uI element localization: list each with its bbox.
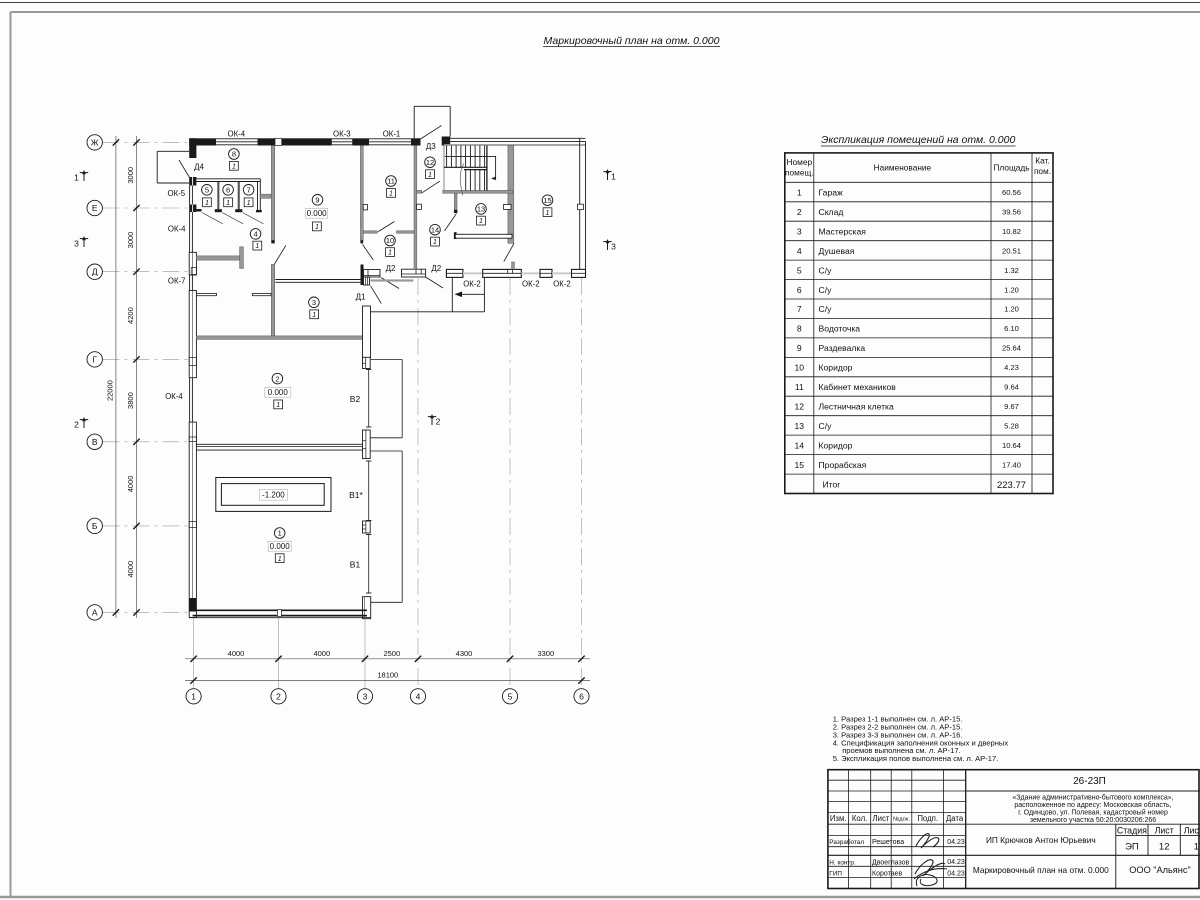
svg-text:1: 1 (232, 163, 236, 170)
svg-text:ГИП: ГИП (829, 871, 842, 878)
svg-text:3: 3 (363, 691, 368, 701)
svg-text:1.20: 1.20 (1004, 285, 1019, 294)
svg-text:2: 2 (797, 207, 802, 217)
svg-text:13: 13 (795, 421, 805, 431)
svg-text:В2: В2 (350, 394, 361, 404)
svg-text:5. Экспликация полов выполнена: 5. Экспликация полов выполнена см. л. АР… (833, 754, 999, 763)
svg-text:Лист: Лист (1184, 825, 1200, 835)
svg-text:С/у: С/у (819, 421, 833, 431)
svg-text:39.56: 39.56 (1002, 207, 1021, 216)
svg-text:№док.: №док. (893, 816, 910, 822)
svg-text:Решетова: Решетова (872, 839, 904, 846)
svg-text:помещ.: помещ. (785, 168, 814, 178)
svg-text:04.23: 04.23 (947, 839, 965, 846)
svg-text:Кабинет механиков: Кабинет механиков (819, 382, 897, 392)
svg-text:7: 7 (797, 304, 802, 314)
svg-text:3: 3 (611, 242, 616, 252)
svg-text:Д: Д (92, 267, 98, 277)
svg-text:0.000: 0.000 (307, 209, 328, 218)
svg-text:Склад: Склад (819, 207, 844, 217)
svg-text:2: 2 (74, 420, 79, 430)
svg-text:Г: Г (92, 354, 97, 364)
svg-text:С/у: С/у (819, 285, 833, 295)
svg-text:3300: 3300 (537, 649, 554, 658)
svg-text:Д4: Д4 (194, 163, 204, 172)
svg-text:«Здание административно-бытово: «Здание административно-бытового комплек… (1012, 793, 1173, 801)
svg-text:1: 1 (226, 200, 230, 207)
svg-text:Водоточка: Водоточка (819, 324, 861, 334)
svg-text:г. Одинцово, ул. Полевая, када: г. Одинцово, ул. Полевая, кадастровый но… (1018, 808, 1168, 816)
svg-text:ЭП: ЭП (1125, 842, 1139, 853)
svg-text:Экспликация помещений на отм.: Экспликация помещений на отм. 0.000 (821, 134, 1015, 146)
svg-text:26-23П: 26-23П (1073, 776, 1106, 787)
svg-text:60.56: 60.56 (1002, 188, 1021, 197)
svg-text:2: 2 (275, 374, 279, 383)
svg-text:Маркировочный план на отм. 0.0: Маркировочный план на отм. 0.000 (544, 35, 720, 47)
svg-text:3: 3 (74, 239, 79, 249)
svg-text:расположенное по адресу: Моско: расположенное по адресу: Московская обла… (1014, 801, 1171, 809)
svg-text:0.000: 0.000 (268, 388, 289, 397)
svg-text:земельного участка 50:20:00302: земельного участка 50:20:0030206:266 (1030, 817, 1156, 824)
svg-text:1: 1 (276, 402, 280, 409)
svg-text:ОК-4: ОК-4 (165, 392, 183, 401)
svg-text:Кат.: Кат. (1035, 156, 1049, 166)
svg-text:10.64: 10.64 (1002, 441, 1021, 450)
svg-text:Площадь: Площадь (993, 163, 1029, 173)
svg-text:14: 14 (795, 440, 805, 450)
svg-text:3: 3 (312, 298, 316, 307)
svg-text:4300: 4300 (456, 649, 473, 658)
svg-text:7: 7 (247, 186, 251, 195)
svg-text:ОК-2: ОК-2 (463, 279, 481, 288)
svg-text:1: 1 (389, 191, 393, 198)
svg-text:ООО "Альянс": ООО "Альянс" (1129, 865, 1190, 875)
svg-text:ИП Крючков Антон Юрьевич: ИП Крючков Антон Юрьевич (986, 835, 1096, 845)
svg-text:ОК-4: ОК-4 (228, 129, 246, 138)
svg-text:С/у: С/у (819, 304, 833, 314)
svg-text:Д2: Д2 (386, 264, 396, 273)
svg-text:223.77: 223.77 (997, 480, 1026, 491)
svg-text:Д3: Д3 (426, 142, 436, 151)
svg-text:ОК-2: ОК-2 (553, 279, 571, 288)
svg-text:9.64: 9.64 (1004, 383, 1019, 392)
svg-text:1: 1 (428, 172, 432, 179)
svg-text:4.23: 4.23 (1004, 363, 1019, 372)
svg-text:1: 1 (479, 218, 483, 225)
svg-text:22000: 22000 (105, 380, 114, 401)
svg-text:5: 5 (205, 186, 209, 195)
svg-text:4: 4 (254, 230, 258, 239)
svg-text:ОК-4: ОК-4 (168, 224, 186, 233)
svg-text:3000: 3000 (126, 167, 135, 184)
svg-text:1: 1 (433, 239, 437, 246)
svg-text:2500: 2500 (383, 649, 400, 658)
svg-text:ОК-1: ОК-1 (383, 129, 401, 138)
svg-text:1: 1 (546, 210, 550, 217)
svg-text:4: 4 (416, 691, 421, 701)
svg-text:1: 1 (278, 529, 282, 538)
svg-text:Е: Е (92, 203, 98, 213)
svg-text:Коротаев: Коротаев (872, 871, 903, 878)
svg-text:0.000: 0.000 (270, 542, 291, 551)
svg-text:15: 15 (543, 196, 551, 205)
svg-text:1.20: 1.20 (1004, 305, 1019, 314)
svg-text:В1: В1 (350, 560, 361, 570)
svg-text:9: 9 (797, 343, 802, 353)
svg-text:А: А (92, 607, 98, 617)
svg-text:12: 12 (795, 401, 805, 411)
svg-text:ОК-7: ОК-7 (168, 277, 186, 286)
svg-text:Подп.: Подп. (917, 814, 938, 823)
svg-text:1: 1 (797, 188, 802, 198)
svg-text:13: 13 (477, 205, 485, 214)
svg-text:Дата: Дата (946, 814, 964, 823)
svg-text:Кол.: Кол. (852, 814, 867, 823)
svg-text:6: 6 (226, 186, 230, 195)
svg-text:3000: 3000 (126, 232, 135, 249)
svg-text:8: 8 (797, 324, 802, 334)
svg-text:Гараж: Гараж (819, 188, 844, 198)
svg-text:Б: Б (92, 521, 98, 531)
svg-text:В: В (92, 437, 98, 447)
svg-text:Прорабская: Прорабская (819, 460, 867, 470)
svg-text:1: 1 (312, 312, 316, 319)
svg-text:Лист: Лист (1155, 825, 1174, 835)
svg-text:5: 5 (508, 691, 513, 701)
svg-text:2: 2 (276, 691, 281, 701)
svg-text:4000: 4000 (313, 649, 330, 658)
svg-text:ОК-2: ОК-2 (522, 279, 540, 288)
svg-text:10: 10 (795, 363, 805, 373)
svg-text:1: 1 (74, 173, 79, 183)
svg-text:С/у: С/у (819, 265, 833, 275)
svg-text:Двоеглазов: Двоеглазов (872, 860, 909, 867)
svg-text:2: 2 (436, 417, 441, 427)
svg-text:1: 1 (388, 250, 392, 257)
svg-text:Н. контр.: Н. контр. (829, 860, 856, 867)
svg-text:4200: 4200 (126, 307, 135, 324)
svg-text:Лист: Лист (873, 814, 890, 823)
svg-text:20.51: 20.51 (1002, 246, 1021, 255)
svg-text:Раздевалка: Раздевалка (819, 343, 866, 353)
svg-text:9: 9 (315, 196, 319, 205)
svg-text:Мастерская: Мастерская (819, 226, 867, 236)
svg-text:1: 1 (315, 224, 319, 231)
svg-text:18100: 18100 (377, 671, 398, 680)
svg-text:10: 10 (386, 236, 394, 245)
svg-text:1: 1 (255, 243, 259, 250)
svg-text:17: 17 (1194, 842, 1200, 853)
svg-text:В1*: В1* (349, 490, 363, 500)
svg-text:-1.200: -1.200 (262, 491, 285, 500)
svg-text:Коридор: Коридор (819, 363, 853, 373)
svg-text:5: 5 (797, 265, 802, 275)
svg-text:12: 12 (1159, 842, 1170, 853)
svg-text:11: 11 (795, 382, 804, 392)
svg-text:Д2: Д2 (431, 264, 441, 273)
svg-text:8: 8 (232, 150, 236, 159)
svg-text:15: 15 (795, 460, 805, 470)
svg-text:10.82: 10.82 (1002, 227, 1021, 236)
svg-text:Маркировочный план на отм. 0.0: Маркировочный план на отм. 0.000 (973, 865, 1109, 875)
svg-text:17.40: 17.40 (1002, 460, 1021, 469)
svg-text:3800: 3800 (126, 392, 135, 409)
svg-text:Изм.: Изм. (830, 814, 847, 823)
svg-text:ОК-5: ОК-5 (168, 189, 186, 198)
svg-text:4: 4 (797, 246, 802, 256)
svg-text:4000: 4000 (126, 476, 135, 493)
svg-text:1: 1 (278, 556, 282, 563)
svg-text:25.64: 25.64 (1002, 344, 1021, 353)
svg-text:6.10: 6.10 (1004, 324, 1019, 333)
svg-text:1: 1 (205, 200, 209, 207)
svg-text:ОК-3: ОК-3 (333, 129, 351, 138)
svg-text:5.28: 5.28 (1004, 421, 1019, 430)
svg-text:04.23: 04.23 (947, 870, 965, 877)
svg-text:4000: 4000 (126, 561, 135, 578)
svg-text:Ж: Ж (91, 137, 99, 147)
svg-text:Итог: Итог (823, 480, 841, 490)
svg-text:9.67: 9.67 (1004, 402, 1019, 411)
svg-text:Номер: Номер (787, 157, 813, 167)
svg-text:Душевая: Душевая (819, 246, 855, 256)
svg-text:Лестничная клетка: Лестничная клетка (819, 401, 894, 411)
svg-text:6: 6 (579, 691, 584, 701)
svg-text:1: 1 (611, 172, 616, 182)
svg-text:Наименование: Наименование (874, 163, 932, 173)
svg-text:14: 14 (431, 225, 439, 234)
svg-text:Стадия: Стадия (1117, 825, 1147, 835)
svg-text:04.23: 04.23 (947, 859, 965, 866)
svg-text:Разработал: Разработал (829, 838, 864, 846)
svg-text:11: 11 (387, 177, 395, 186)
svg-text:12: 12 (426, 158, 434, 167)
svg-text:1.32: 1.32 (1004, 266, 1019, 275)
svg-text:1: 1 (191, 691, 196, 701)
svg-text:3: 3 (797, 226, 802, 236)
svg-text:6: 6 (797, 285, 802, 295)
svg-text:4000: 4000 (228, 649, 245, 658)
svg-text:1: 1 (247, 200, 251, 207)
svg-text:пом.: пом. (1034, 166, 1051, 176)
svg-text:Коридор: Коридор (819, 440, 853, 450)
svg-text:Д1: Д1 (356, 293, 366, 302)
